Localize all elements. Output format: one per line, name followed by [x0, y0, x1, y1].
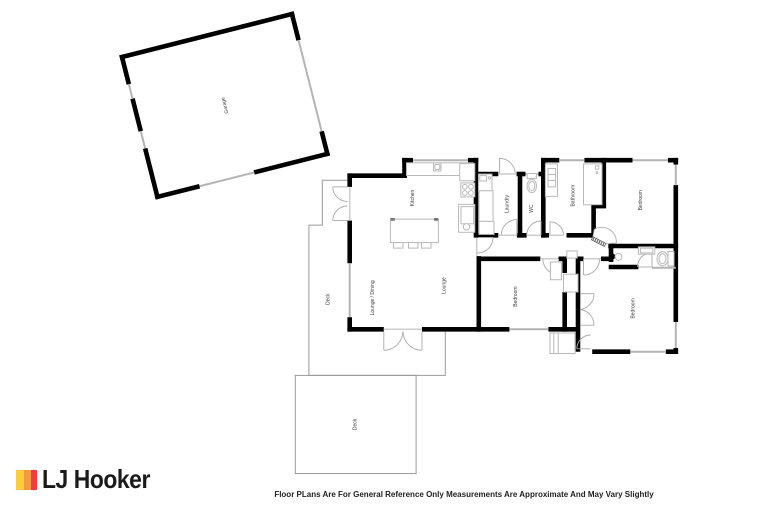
svg-text:WC: WC	[529, 204, 535, 213]
svg-text:Lounge / Dining: Lounge / Dining	[370, 280, 376, 315]
svg-text:Bathroom: Bathroom	[571, 185, 577, 207]
svg-text:Bedroom: Bedroom	[638, 190, 644, 210]
svg-text:Deck: Deck	[353, 418, 359, 430]
svg-text:Kitchen: Kitchen	[410, 189, 416, 206]
svg-text:Garage: Garage	[220, 96, 230, 114]
svg-text:Bedroom: Bedroom	[513, 286, 519, 306]
svg-text:Deck: Deck	[326, 293, 332, 305]
svg-text:Lounge: Lounge	[441, 277, 447, 294]
svg-text:Laundry: Laundry	[505, 194, 511, 213]
svg-text:Bedroom: Bedroom	[631, 298, 637, 318]
